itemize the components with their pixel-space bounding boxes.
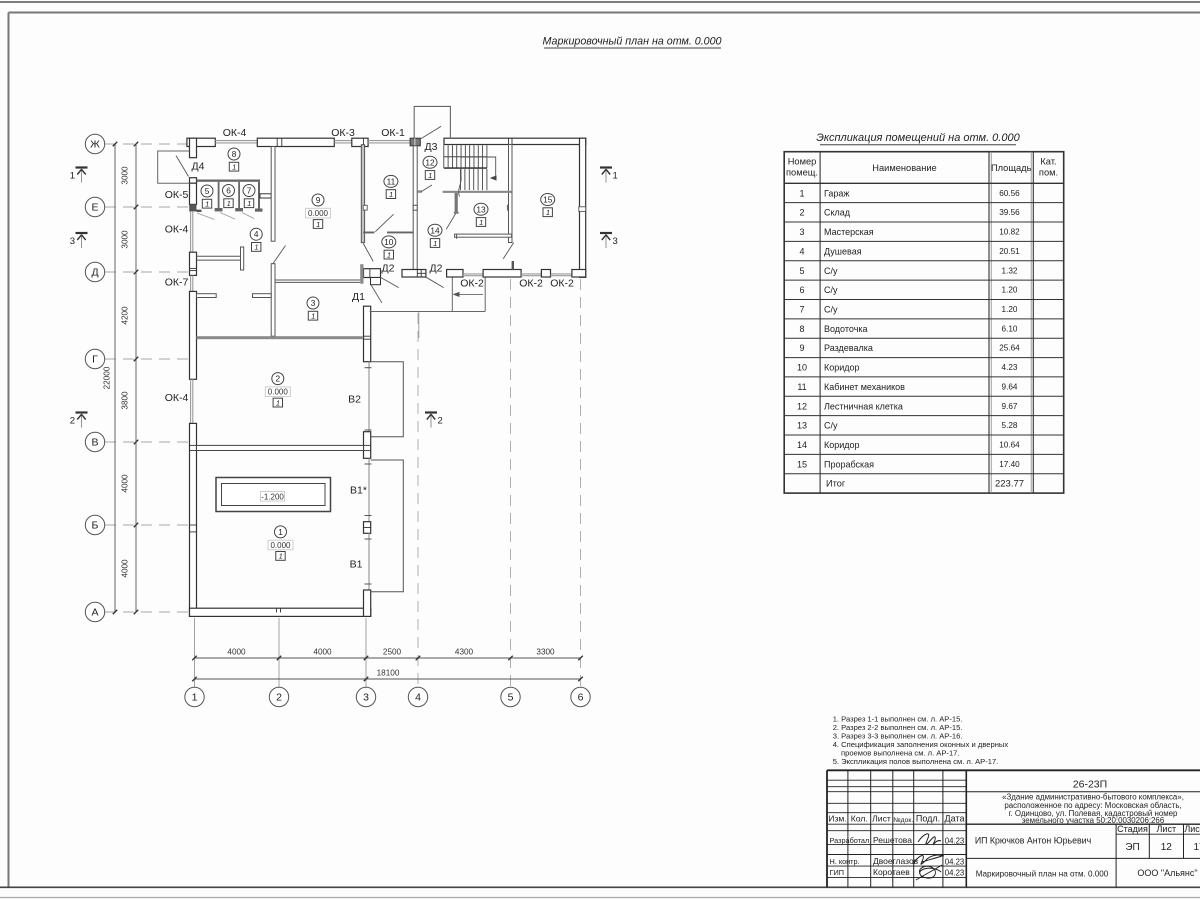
svg-text:Лист: Лист <box>872 814 891 824</box>
svg-text:5. Экспликация полов выполнена: 5. Экспликация полов выполнена см. л. АР… <box>833 757 999 766</box>
svg-text:Разработал: Разработал <box>830 836 870 845</box>
svg-text:Мастерская: Мастерская <box>824 227 874 237</box>
svg-text:Д1: Д1 <box>352 291 365 303</box>
svg-text:1: 1 <box>479 218 483 227</box>
svg-text:12: 12 <box>1161 842 1173 853</box>
svg-text:ОК-2: ОК-2 <box>519 278 543 290</box>
svg-text:14: 14 <box>797 440 807 450</box>
svg-text:4: 4 <box>415 692 421 704</box>
svg-text:Дата: Дата <box>945 814 965 824</box>
svg-text:10.64: 10.64 <box>999 441 1020 450</box>
svg-text:1: 1 <box>428 171 432 180</box>
svg-text:Ж: Ж <box>90 139 100 151</box>
svg-text:11: 11 <box>387 176 396 186</box>
svg-text:1: 1 <box>247 199 251 208</box>
svg-text:Итог: Итог <box>826 479 846 489</box>
svg-text:№док.: №док. <box>893 817 913 824</box>
svg-text:ОК-7: ОК-7 <box>165 277 189 289</box>
svg-text:Д: Д <box>91 267 98 279</box>
svg-text:ОК-4: ОК-4 <box>165 223 189 235</box>
svg-text:1.20: 1.20 <box>1002 305 1018 314</box>
svg-text:2: 2 <box>70 416 75 427</box>
svg-text:9: 9 <box>799 343 804 353</box>
svg-text:1: 1 <box>227 199 231 208</box>
svg-text:1: 1 <box>311 312 315 321</box>
svg-text:Е: Е <box>91 202 98 214</box>
svg-text:12: 12 <box>425 157 435 167</box>
svg-text:Лестничная клетка: Лестничная клетка <box>824 401 903 411</box>
svg-text:5.28: 5.28 <box>1002 421 1018 430</box>
svg-text:Стадия: Стадия <box>1117 824 1148 834</box>
svg-text:пом.: пом. <box>1039 168 1058 178</box>
svg-text:1: 1 <box>192 692 198 704</box>
svg-text:С/у: С/у <box>824 421 838 431</box>
svg-text:5: 5 <box>799 266 804 276</box>
svg-text:Кол.: Кол. <box>851 814 868 824</box>
svg-text:1: 1 <box>232 163 236 172</box>
svg-text:Площадь: Площадь <box>991 163 1032 173</box>
svg-text:Кат.: Кат. <box>1040 157 1056 167</box>
svg-text:1: 1 <box>316 220 320 229</box>
svg-text:6: 6 <box>799 285 804 295</box>
svg-text:1: 1 <box>389 190 393 199</box>
svg-text:ОК-5: ОК-5 <box>165 189 189 201</box>
svg-text:04.23: 04.23 <box>945 869 965 878</box>
svg-text:4: 4 <box>799 246 804 256</box>
svg-text:Изм.: Изм. <box>828 814 846 824</box>
svg-text:помещ.: помещ. <box>786 168 818 178</box>
svg-text:1.20: 1.20 <box>1002 286 1018 295</box>
svg-text:ОК-2: ОК-2 <box>460 278 484 290</box>
svg-text:3000: 3000 <box>121 166 130 185</box>
svg-text:ООО "Альянс": ООО "Альянс" <box>1137 868 1197 878</box>
svg-text:Гараж: Гараж <box>824 188 849 198</box>
svg-text:2: 2 <box>275 374 280 384</box>
svg-text:13: 13 <box>476 204 486 214</box>
svg-text:Склад: Склад <box>824 208 851 218</box>
svg-text:1: 1 <box>799 188 804 198</box>
svg-text:Коридор: Коридор <box>824 440 860 450</box>
svg-text:0.000: 0.000 <box>268 388 289 397</box>
svg-text:4000: 4000 <box>121 474 130 493</box>
svg-text:1: 1 <box>387 250 391 259</box>
svg-text:3: 3 <box>311 298 316 308</box>
svg-text:С/у: С/у <box>824 304 838 314</box>
svg-text:4000: 4000 <box>121 559 130 578</box>
svg-text:18100: 18100 <box>377 669 400 678</box>
svg-text:А: А <box>91 607 98 619</box>
svg-text:Прорабская: Прорабская <box>824 459 874 469</box>
svg-text:Лист: Лист <box>1157 824 1177 834</box>
svg-text:3: 3 <box>613 236 618 247</box>
svg-text:1: 1 <box>279 552 283 561</box>
svg-text:Д3: Д3 <box>425 141 438 153</box>
svg-text:5: 5 <box>508 692 514 704</box>
svg-text:Маркировочный план на отм. 0.0: Маркировочный план на отм. 0.000 <box>542 36 721 48</box>
svg-text:15: 15 <box>797 459 807 469</box>
svg-text:2: 2 <box>276 692 282 704</box>
svg-text:1: 1 <box>433 239 437 248</box>
svg-text:Коротаев: Коротаев <box>873 867 910 877</box>
svg-text:Б: Б <box>92 520 99 532</box>
svg-text:1: 1 <box>613 171 618 182</box>
svg-text:223.77: 223.77 <box>995 479 1024 490</box>
svg-text:1: 1 <box>276 398 280 407</box>
svg-text:11: 11 <box>797 382 806 392</box>
svg-text:В1*: В1* <box>350 485 367 497</box>
svg-text:Г: Г <box>92 354 98 366</box>
svg-text:6: 6 <box>226 186 231 196</box>
svg-text:15: 15 <box>543 195 553 205</box>
svg-text:7: 7 <box>799 304 804 314</box>
svg-text:3: 3 <box>363 692 369 704</box>
svg-text:4000: 4000 <box>313 648 332 657</box>
svg-text:04.23: 04.23 <box>945 857 965 866</box>
svg-text:С/у: С/у <box>824 266 838 276</box>
svg-text:8: 8 <box>799 324 804 334</box>
svg-text:Двоеглазов: Двоеглазов <box>873 856 919 866</box>
svg-text:4200: 4200 <box>121 306 130 325</box>
svg-text:2: 2 <box>438 416 443 427</box>
svg-text:Кабинет механиков: Кабинет механиков <box>824 382 905 392</box>
svg-text:9.64: 9.64 <box>1002 382 1018 391</box>
svg-text:10: 10 <box>797 363 807 373</box>
svg-text:17.40: 17.40 <box>999 460 1020 469</box>
svg-text:60.56: 60.56 <box>999 189 1020 198</box>
svg-text:Водоточка: Водоточка <box>824 324 868 334</box>
svg-text:6.10: 6.10 <box>1002 324 1018 333</box>
svg-text:4300: 4300 <box>455 648 474 657</box>
svg-text:13: 13 <box>797 421 807 431</box>
svg-text:ИП Крючков Антон Юрьевич: ИП Крючков Антон Юрьевич <box>975 836 1091 846</box>
svg-text:Д2: Д2 <box>382 263 395 275</box>
svg-text:8: 8 <box>232 149 237 159</box>
svg-text:ОК-2: ОК-2 <box>550 278 574 290</box>
svg-text:6: 6 <box>578 692 584 704</box>
svg-text:Решетова: Решетова <box>873 835 912 845</box>
svg-text:Д2: Д2 <box>430 263 443 275</box>
svg-text:Номер: Номер <box>788 157 817 167</box>
svg-text:ГИП: ГИП <box>830 868 844 877</box>
svg-text:ОК-1: ОК-1 <box>381 127 405 139</box>
svg-text:3: 3 <box>70 236 75 247</box>
svg-text:4000: 4000 <box>227 648 246 657</box>
svg-text:-1.200: -1.200 <box>261 492 284 501</box>
svg-text:5: 5 <box>205 186 210 196</box>
svg-text:В1: В1 <box>350 559 363 571</box>
svg-text:9.67: 9.67 <box>1002 402 1018 411</box>
svg-text:1.32: 1.32 <box>1002 266 1018 275</box>
svg-text:4: 4 <box>254 229 259 239</box>
svg-text:20.51: 20.51 <box>999 247 1020 256</box>
svg-text:22000: 22000 <box>103 366 112 389</box>
svg-text:1: 1 <box>205 200 209 209</box>
svg-text:04.23: 04.23 <box>945 836 965 845</box>
svg-text:39.56: 39.56 <box>999 208 1020 217</box>
svg-text:Экспликация помещений на отм.: Экспликация помещений на отм. 0.000 <box>816 132 1020 144</box>
svg-text:0.000: 0.000 <box>308 209 329 218</box>
svg-text:7: 7 <box>247 186 252 196</box>
svg-text:3800: 3800 <box>121 391 130 410</box>
svg-text:ОК-3: ОК-3 <box>331 127 355 139</box>
svg-text:14: 14 <box>430 225 440 235</box>
svg-text:12: 12 <box>797 401 807 411</box>
svg-text:ОК-4: ОК-4 <box>165 392 189 404</box>
svg-text:9: 9 <box>316 195 321 205</box>
svg-text:1: 1 <box>546 208 550 217</box>
svg-text:Подл.: Подл. <box>916 814 940 824</box>
svg-text:Раздевалка: Раздевалка <box>824 343 873 353</box>
svg-text:3300: 3300 <box>536 648 555 657</box>
svg-text:3: 3 <box>799 227 804 237</box>
svg-text:10: 10 <box>384 237 394 247</box>
svg-text:Маркировочный план на отм. 0.0: Маркировочный план на отм. 0.000 <box>976 869 1109 878</box>
svg-text:1: 1 <box>254 243 258 252</box>
svg-text:0.000: 0.000 <box>270 541 291 550</box>
svg-text:17: 17 <box>1193 842 1200 853</box>
svg-text:Наименование: Наименование <box>872 163 936 173</box>
svg-text:ОК-4: ОК-4 <box>223 127 247 139</box>
svg-text:Листов: Листов <box>1184 824 1200 834</box>
svg-text:2500: 2500 <box>383 648 402 657</box>
svg-text:ЭП: ЭП <box>1125 842 1139 853</box>
svg-text:С/у: С/у <box>824 285 838 295</box>
svg-text:4.23: 4.23 <box>1002 363 1018 372</box>
svg-text:10.82: 10.82 <box>999 228 1020 237</box>
svg-text:Н. контр.: Н. контр. <box>830 857 860 866</box>
svg-text:25.64: 25.64 <box>999 344 1020 353</box>
svg-text:В2: В2 <box>348 394 361 406</box>
svg-text:2: 2 <box>799 208 804 218</box>
svg-text:1: 1 <box>278 527 283 537</box>
svg-text:26-23П: 26-23П <box>1073 778 1107 790</box>
svg-text:В: В <box>91 437 98 449</box>
svg-text:Душевая: Душевая <box>824 246 862 256</box>
svg-text:1: 1 <box>70 171 75 182</box>
svg-text:Коридор: Коридор <box>824 363 860 373</box>
svg-text:Д4: Д4 <box>192 161 205 173</box>
svg-text:3000: 3000 <box>121 230 130 249</box>
